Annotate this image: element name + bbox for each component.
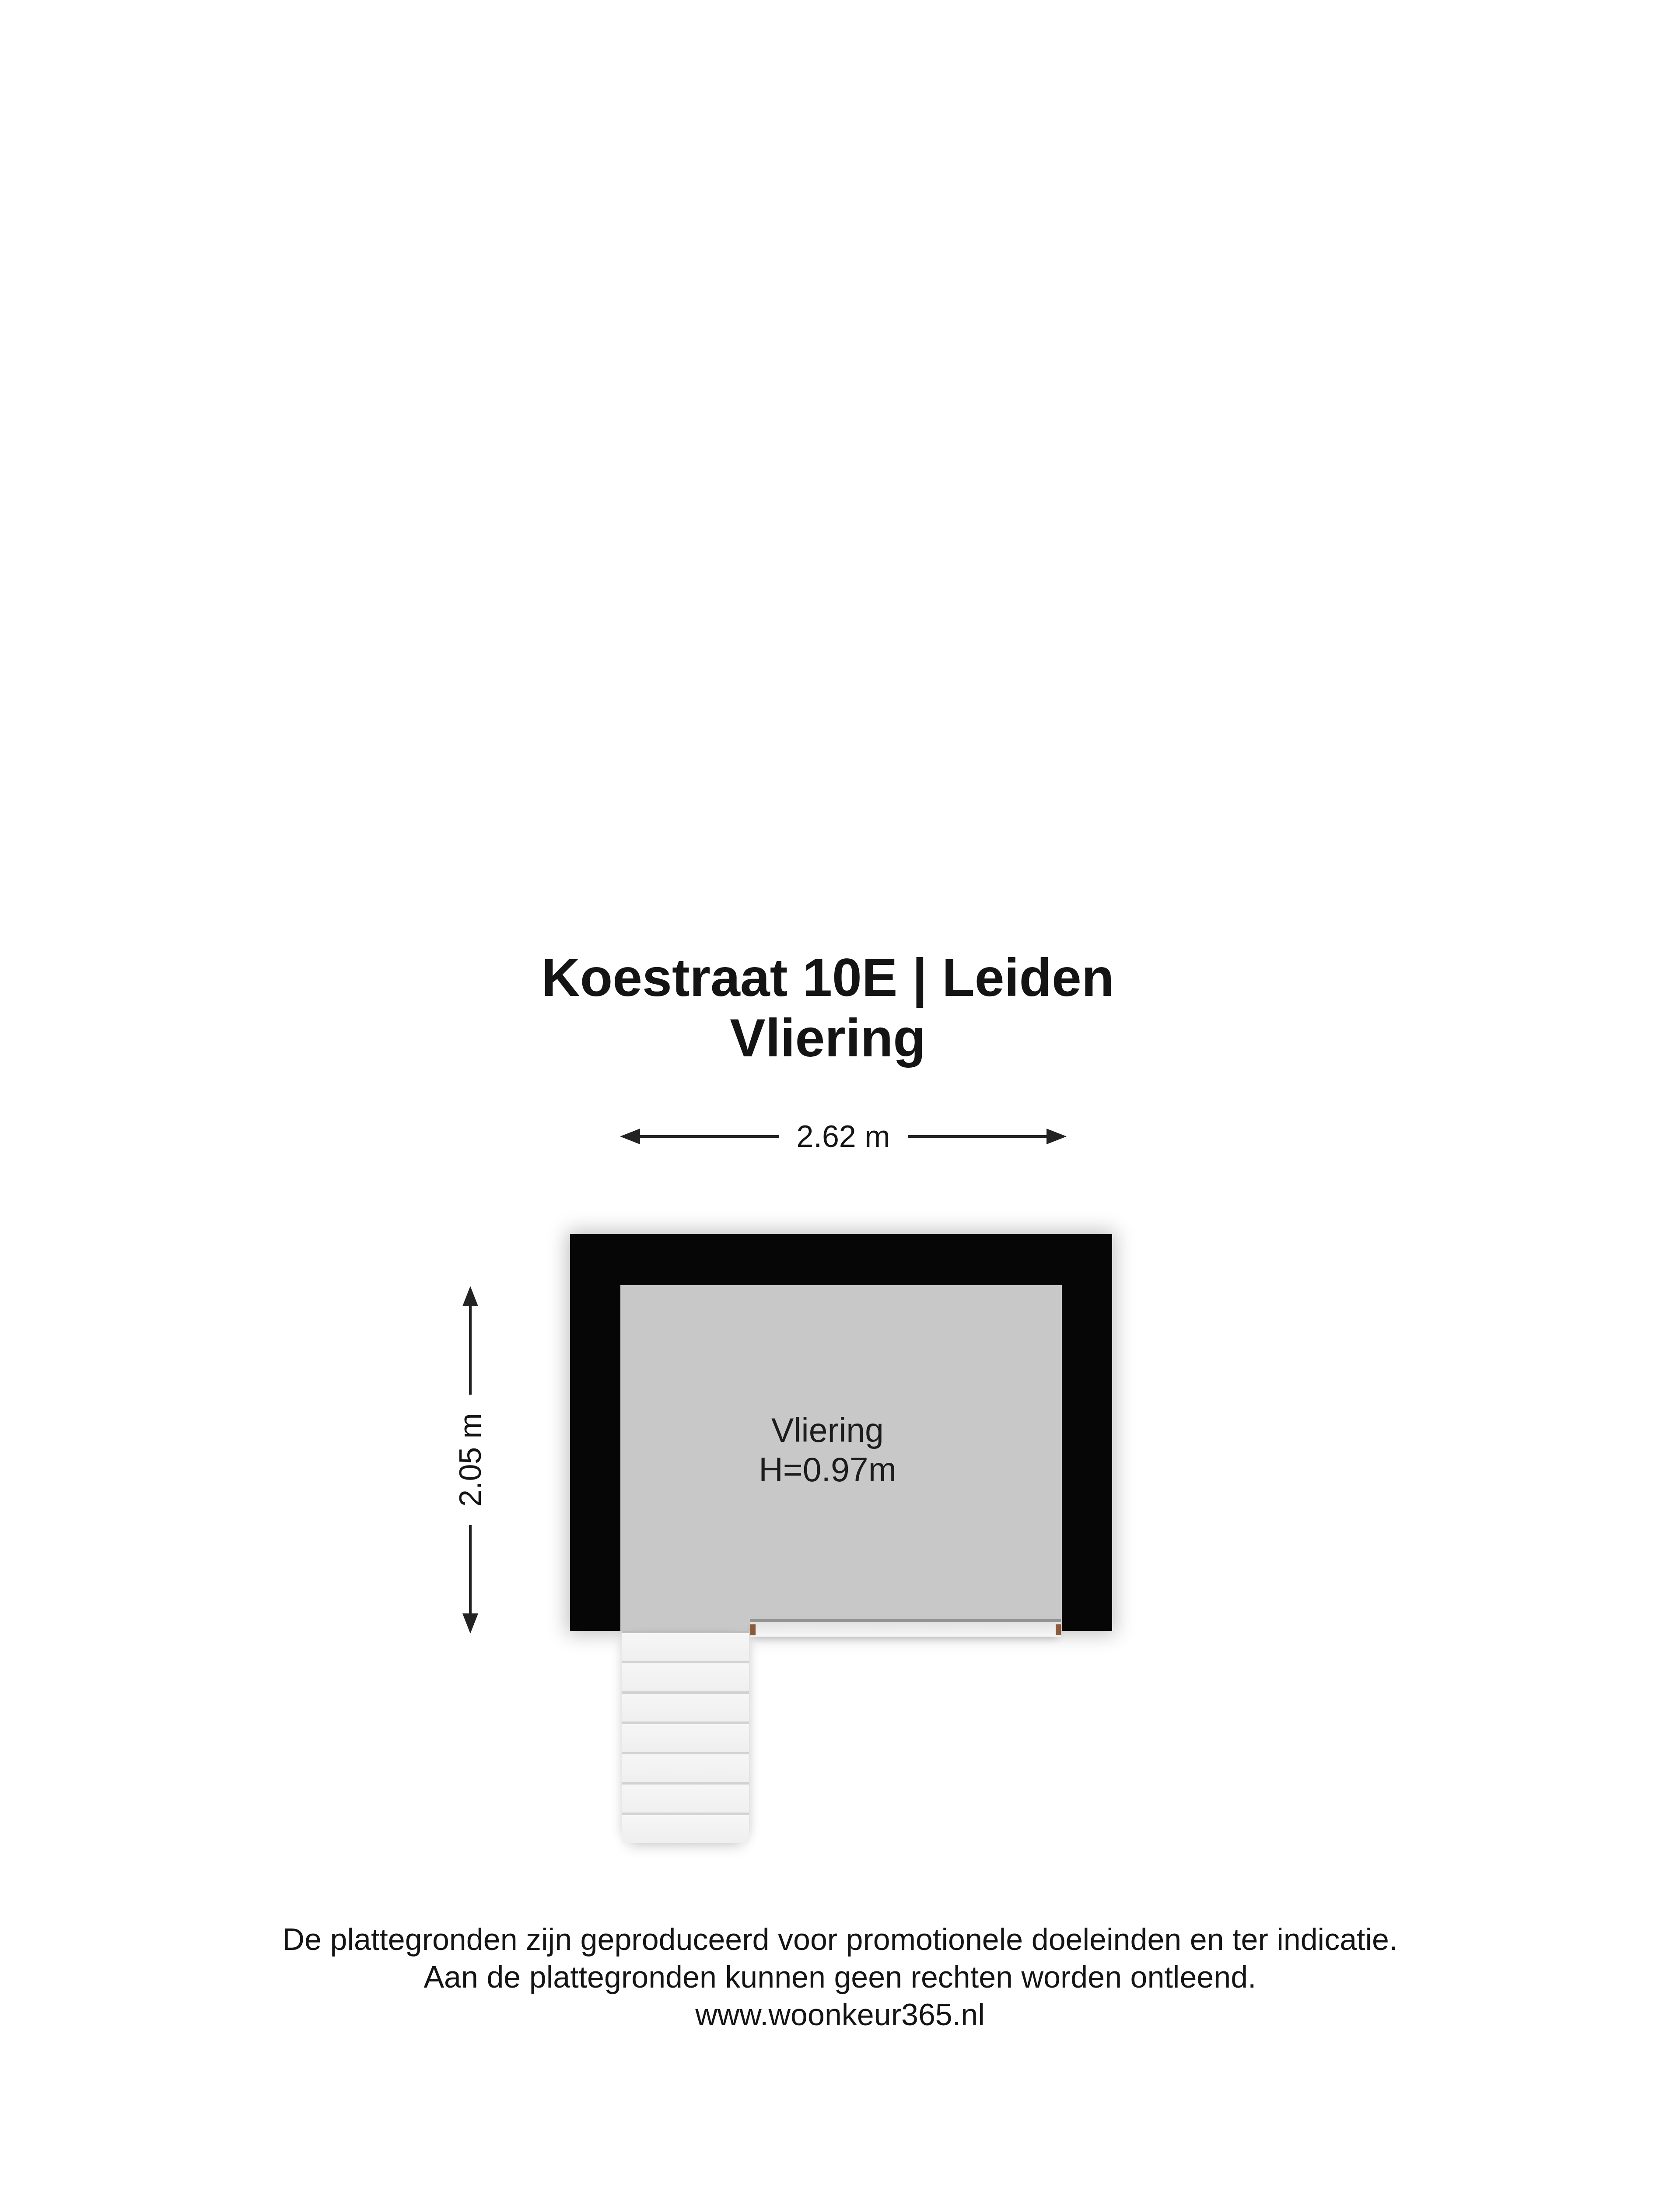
wall-top bbox=[570, 1234, 1112, 1285]
title-address: Koestraat 10E | Leiden bbox=[0, 947, 1655, 1008]
wall-right bbox=[1062, 1234, 1112, 1631]
room-label: Vliering H=0.97m bbox=[759, 1410, 896, 1489]
railing bbox=[750, 1619, 1061, 1637]
disclaimer: De plattegronden zijn geproduceerd voor … bbox=[0, 1921, 1680, 2034]
stair-step bbox=[622, 1633, 749, 1661]
stair-step bbox=[622, 1691, 749, 1722]
floorplan-diagram: Vliering H=0.97m bbox=[570, 1234, 1112, 1631]
stair-step bbox=[622, 1722, 749, 1752]
stair-step bbox=[622, 1813, 749, 1843]
railing-end-right bbox=[1056, 1624, 1061, 1635]
width-dimension-label: 2.62 m bbox=[779, 1119, 908, 1154]
staircase bbox=[622, 1631, 749, 1843]
stair-step bbox=[622, 1661, 749, 1691]
height-dimension: 2.05 m bbox=[455, 1286, 486, 1634]
disclaimer-line-1: De plattegronden zijn geproduceerd voor … bbox=[0, 1921, 1680, 1958]
title-floor-name: Vliering bbox=[0, 1008, 1655, 1068]
wall-left bbox=[570, 1234, 620, 1631]
room-ceiling-height-label: H=0.97m bbox=[759, 1450, 896, 1489]
railing-end-left bbox=[750, 1624, 756, 1635]
height-dimension-label: 2.05 m bbox=[453, 1395, 488, 1525]
website-text: www.woonkeur365.nl bbox=[0, 1996, 1680, 2034]
dimension-arrow-down-icon bbox=[462, 1613, 478, 1634]
stair-step bbox=[622, 1782, 749, 1812]
room-name-label: Vliering bbox=[759, 1410, 896, 1450]
dimension-arrow-right-icon bbox=[1046, 1129, 1067, 1144]
page-title: Koestraat 10E | Leiden Vliering bbox=[0, 947, 1655, 1068]
stair-step bbox=[622, 1752, 749, 1782]
floorplan-page: Koestraat 10E | Leiden Vliering 2.62 m 2… bbox=[0, 0, 1680, 2188]
disclaimer-line-2: Aan de plattegronden kunnen geen rechten… bbox=[0, 1958, 1680, 1996]
width-dimension: 2.62 m bbox=[620, 1126, 1067, 1147]
room-vliering: Vliering H=0.97m bbox=[620, 1285, 1062, 1631]
